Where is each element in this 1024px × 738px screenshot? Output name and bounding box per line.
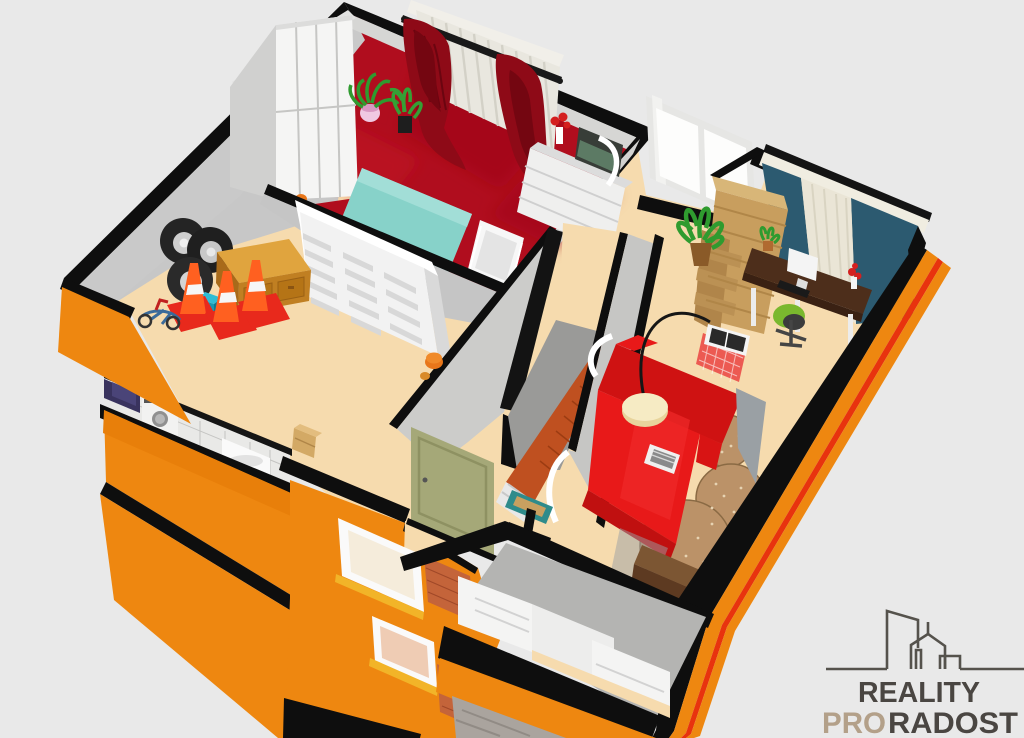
- svg-text:RADOST: RADOST: [888, 707, 1018, 738]
- svg-text:REALITY: REALITY: [858, 677, 980, 709]
- svg-text:PRO: PRO: [822, 707, 886, 738]
